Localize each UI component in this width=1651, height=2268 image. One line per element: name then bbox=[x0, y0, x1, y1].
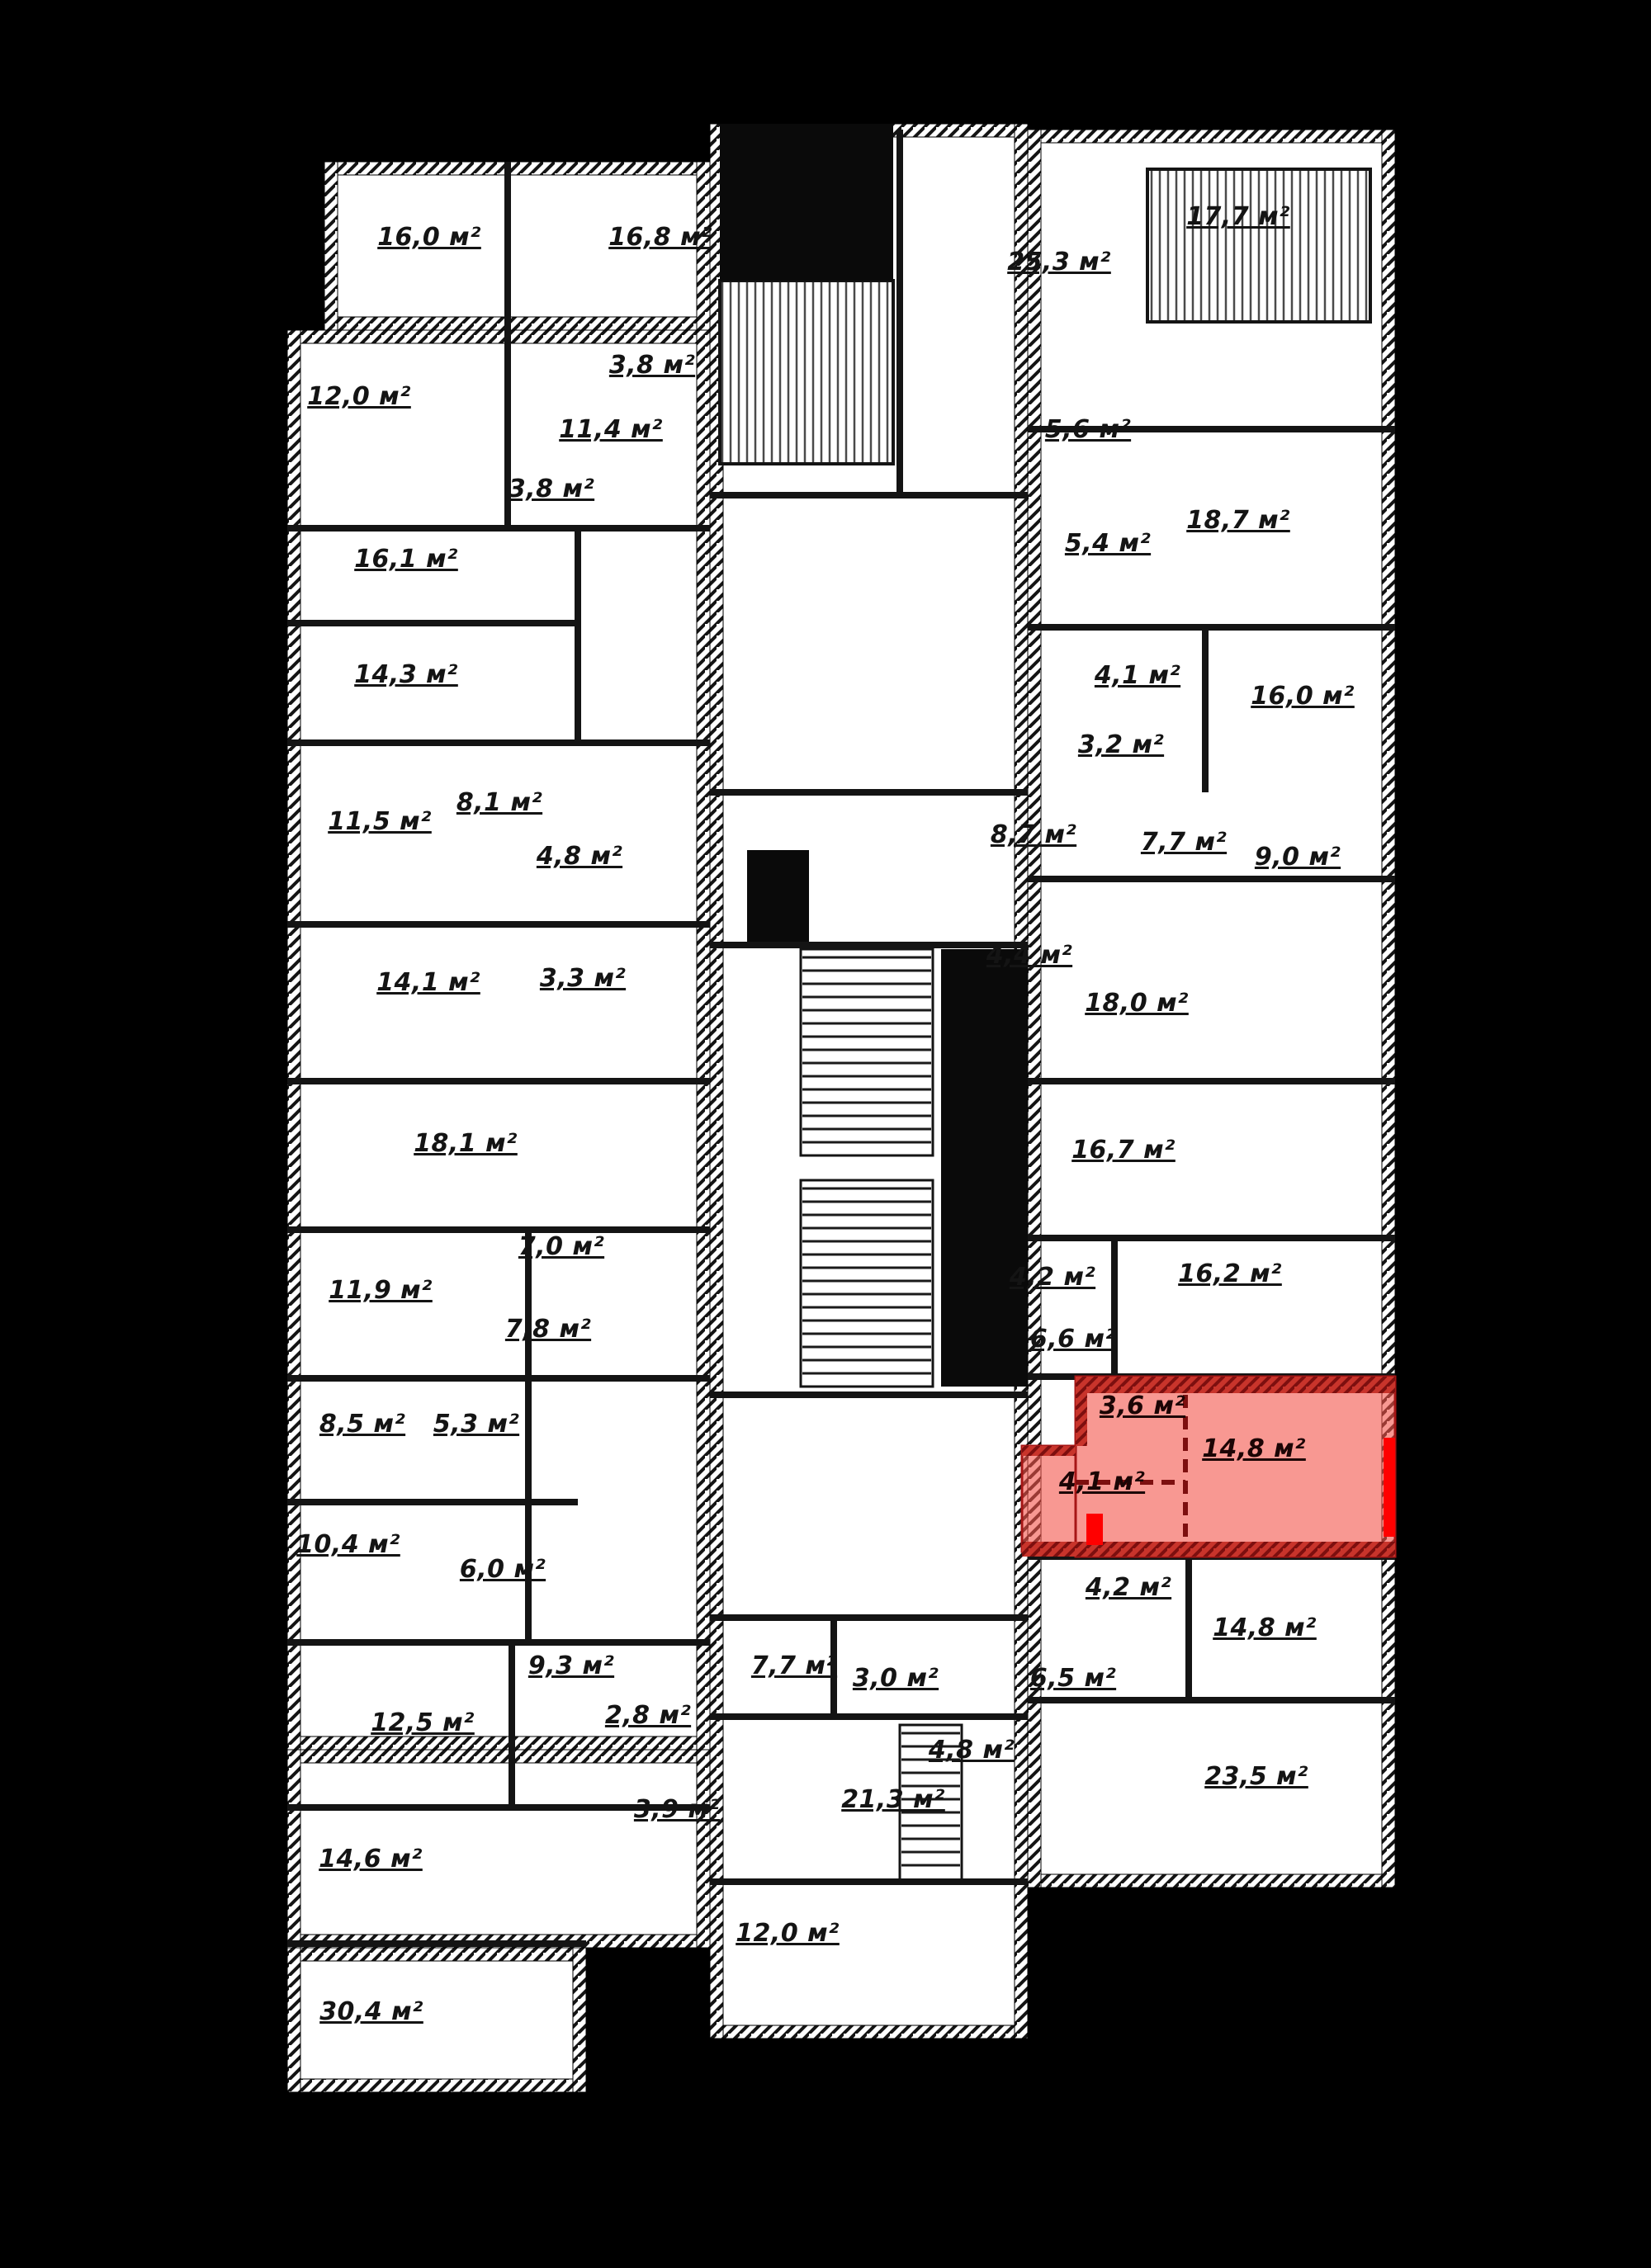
outer-wall-hatch bbox=[1028, 1874, 1395, 1888]
highlighted-unit-wall-hatch bbox=[1022, 1542, 1395, 1557]
outer-wall-hatch bbox=[1028, 130, 1395, 143]
outer-wall-hatch bbox=[710, 2025, 1028, 2039]
room-area-label: 16,0 м² bbox=[1251, 682, 1355, 711]
room-area-label: 3,0 м² bbox=[853, 1664, 939, 1693]
room-area-label: 12,0 м² bbox=[736, 1919, 840, 1948]
outer-wall-hatch bbox=[573, 1948, 586, 2092]
room-area-label: 16,2 м² bbox=[1178, 1259, 1282, 1288]
room-area-label: 25,3 м² bbox=[1007, 248, 1111, 276]
room-area-label: 12,0 м² bbox=[307, 382, 411, 411]
room-area-label: 11,9 м² bbox=[329, 1276, 433, 1305]
room-area-label: 9,0 м² bbox=[1255, 843, 1341, 872]
highlighted-unit-wall-hatch bbox=[1076, 1393, 1087, 1446]
outer-wall-hatch bbox=[287, 1750, 300, 1948]
room-area-label: 5,6 м² bbox=[1045, 415, 1131, 444]
room-area-label: 14,8 м² bbox=[1202, 1434, 1306, 1463]
room-area-label: 4,2 м² bbox=[1009, 1263, 1095, 1292]
room-area-label: 4,4 м² bbox=[986, 941, 1072, 970]
highlighted-unit-layer bbox=[1022, 1377, 1395, 1557]
outer-wall-hatch bbox=[1028, 130, 1041, 1888]
room-area-label: 14,8 м² bbox=[1213, 1614, 1317, 1642]
room-area-label: 23,5 м² bbox=[1204, 1762, 1308, 1791]
room-area-label: 4,8 м² bbox=[536, 842, 622, 871]
outer-wall-hatch bbox=[287, 1948, 300, 2092]
outer-wall-hatch bbox=[287, 1736, 710, 1750]
room-area-label: 8,5 м² bbox=[319, 1410, 405, 1439]
highlighted-unit-wall-hatch bbox=[1022, 1446, 1076, 1456]
room-area-label: 14,6 м² bbox=[319, 1845, 423, 1873]
room-area-label: 6,6 м² bbox=[1030, 1325, 1116, 1354]
room-area-label: 5,4 м² bbox=[1065, 529, 1151, 558]
room-area-label: 8,1 м² bbox=[457, 788, 542, 817]
room-area-label: 4,2 м² bbox=[1085, 1573, 1171, 1602]
room-area-label: 30,4 м² bbox=[319, 1997, 423, 2026]
room-area-label: 14,3 м² bbox=[354, 660, 458, 689]
floor-plan-svg: 16,0 м²16,8 м²3,8 м²12,0 м²11,4 м²25,3 м… bbox=[0, 0, 1651, 2268]
room-area-label: 14,1 м² bbox=[376, 968, 480, 997]
terrace bbox=[720, 281, 893, 464]
room-area-label: 7,8 м² bbox=[505, 1315, 591, 1344]
building-footprint bbox=[1028, 130, 1395, 1888]
room-area-label: 4,8 м² bbox=[928, 1736, 1015, 1765]
floor-plan: 16,0 м²16,8 м²3,8 м²12,0 м²11,4 м²25,3 м… bbox=[0, 0, 1651, 2268]
room-area-label: 18,7 м² bbox=[1186, 506, 1290, 535]
room-area-label: 3,8 м² bbox=[609, 351, 695, 380]
outer-wall-hatch bbox=[324, 162, 710, 175]
room-area-label: 4,1 м² bbox=[1058, 1467, 1145, 1496]
highlighted-unit-area bbox=[1022, 1446, 1076, 1552]
room-area-label: 18,0 м² bbox=[1085, 989, 1189, 1018]
room-area-label: 9,3 м² bbox=[528, 1651, 614, 1680]
room-area-label: 16,7 м² bbox=[1071, 1136, 1176, 1165]
room-area-label: 7,7 м² bbox=[751, 1651, 837, 1680]
outer-wall-hatch bbox=[324, 162, 338, 330]
outer-wall-hatch bbox=[697, 330, 710, 1750]
outer-wall-hatch bbox=[287, 1948, 586, 1961]
core-shaft bbox=[747, 850, 809, 945]
outer-wall-hatch bbox=[1382, 130, 1395, 1888]
highlighted-unit-opening bbox=[1384, 1438, 1395, 1537]
room-area-label: 8,7 м² bbox=[991, 820, 1076, 849]
room-area-label: 3,8 м² bbox=[509, 475, 594, 503]
highlighted-unit-wall-hatch bbox=[1076, 1377, 1395, 1393]
core-shaft bbox=[720, 124, 893, 281]
room-area-label: 6,5 м² bbox=[1030, 1664, 1116, 1693]
highlighted-unit-opening bbox=[1086, 1514, 1103, 1545]
room-area-label: 16,0 м² bbox=[377, 223, 481, 252]
room-area-label: 7,7 м² bbox=[1141, 828, 1227, 857]
room-area-label: 3,2 м² bbox=[1078, 730, 1164, 759]
room-area-label: 16,8 м² bbox=[608, 223, 712, 252]
room-area-label: 7,0 м² bbox=[518, 1232, 604, 1261]
outer-wall-hatch bbox=[287, 2079, 586, 2092]
room-area-label: 5,3 м² bbox=[433, 1410, 519, 1439]
room-area-label: 6,0 м² bbox=[460, 1555, 546, 1584]
room-area-label: 17,7 м² bbox=[1186, 202, 1290, 231]
outer-wall-hatch bbox=[324, 317, 710, 330]
core-shaft bbox=[941, 949, 1028, 1387]
room-area-label: 3,9 м² bbox=[634, 1795, 720, 1824]
stair-run bbox=[801, 949, 933, 1155]
outer-wall-hatch bbox=[287, 1750, 710, 1763]
outer-wall-hatch bbox=[287, 330, 710, 343]
outer-wall-hatch bbox=[697, 1750, 710, 1948]
room-area-label: 4,1 м² bbox=[1094, 661, 1180, 690]
room-area-label: 3,3 м² bbox=[540, 964, 626, 993]
stair-run bbox=[801, 1180, 933, 1387]
room-area-label: 11,5 м² bbox=[328, 807, 432, 836]
room-area-label: 3,6 м² bbox=[1100, 1392, 1185, 1420]
room-area-label: 12,5 м² bbox=[371, 1708, 475, 1737]
room-area-label: 10,4 м² bbox=[296, 1530, 400, 1559]
room-area-label: 21,3 м² bbox=[841, 1785, 945, 1814]
room-area-label: 18,1 м² bbox=[414, 1129, 518, 1158]
room-area-label: 2,8 м² bbox=[605, 1701, 691, 1730]
terrace bbox=[1147, 169, 1370, 322]
room-area-label: 16,1 м² bbox=[354, 545, 458, 574]
room-area-label: 11,4 м² bbox=[559, 415, 663, 444]
